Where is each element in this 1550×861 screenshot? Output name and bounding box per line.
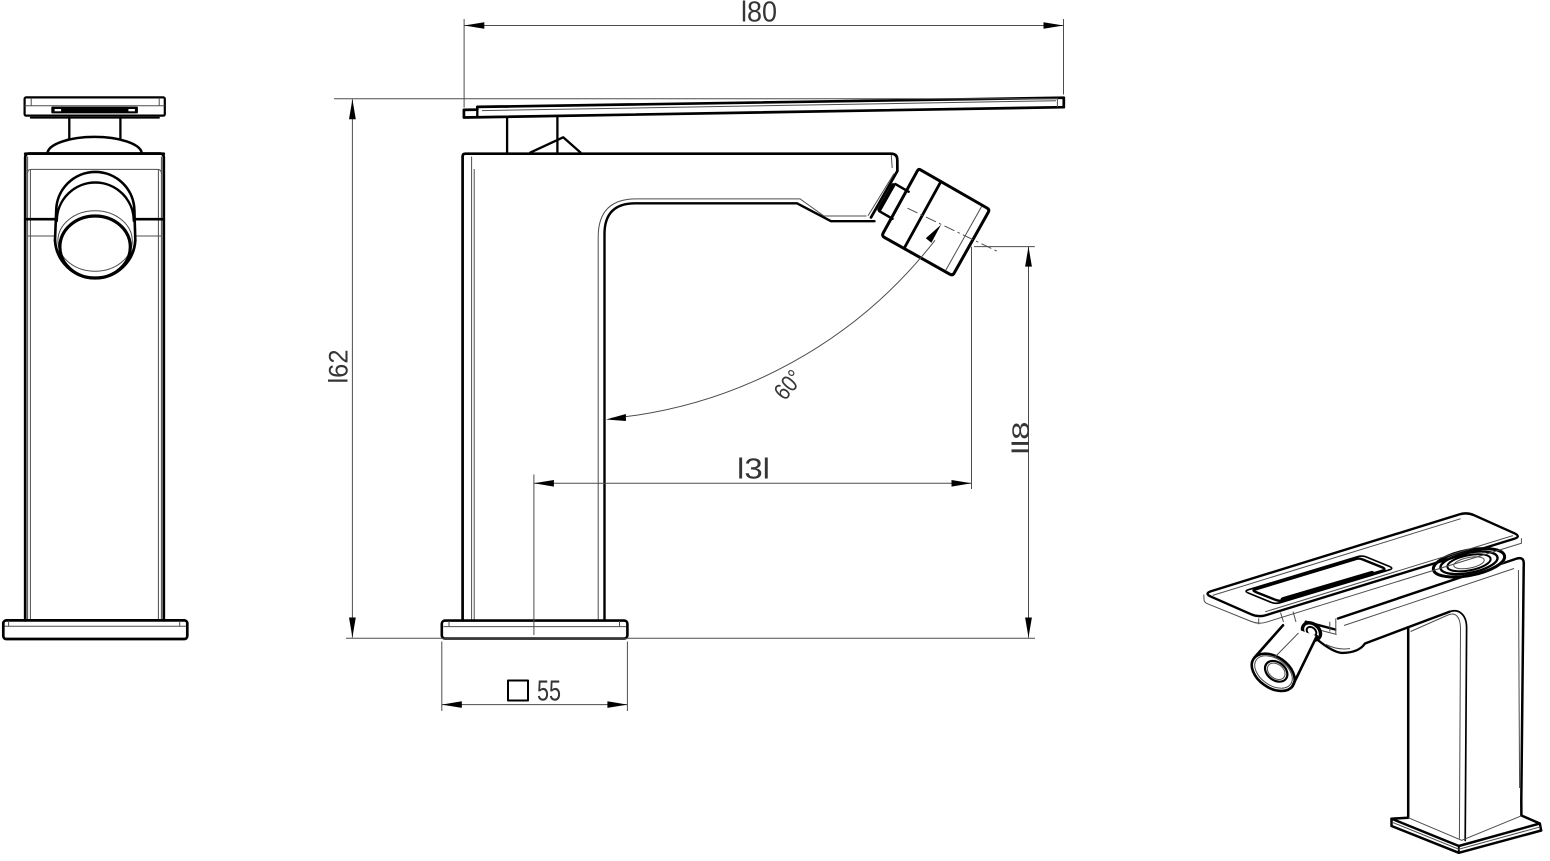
svg-text:l3l: l3l: [737, 454, 770, 486]
svg-text:l62: l62: [324, 350, 354, 384]
svg-text:ll8: ll8: [1008, 422, 1035, 455]
svg-text:l80: l80: [741, 0, 777, 29]
svg-text:55: 55: [537, 676, 561, 708]
